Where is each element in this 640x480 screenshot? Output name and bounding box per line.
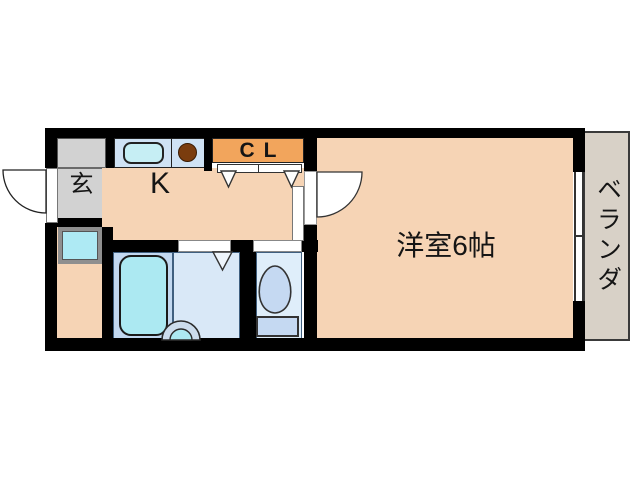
- washroom-door: [178, 240, 231, 252]
- veranda-window: [574, 172, 584, 301]
- closet-sliding-door-divider: [258, 164, 259, 173]
- wall-segment: [302, 240, 318, 252]
- wall-segment: [45, 223, 57, 351]
- kitchen-room: [102, 168, 304, 240]
- toilet-tank-icon: [256, 316, 299, 337]
- entrance-door-swing-icon: [3, 170, 46, 213]
- wall-segment: [102, 240, 178, 252]
- stove-burner-icon: [178, 143, 197, 162]
- kitchen-label: K: [140, 167, 180, 201]
- wall-segment: [240, 252, 256, 338]
- kitchen-counter-divider: [171, 139, 172, 167]
- wall-segment: [204, 138, 212, 171]
- closet-label: CL: [212, 138, 304, 163]
- toilet-door: [253, 240, 302, 252]
- entrance-label: 玄: [57, 170, 106, 200]
- washing-machine-pan-icon: [58, 227, 102, 264]
- veranda-label: ベランダ: [588, 150, 626, 322]
- room-door-opening: [304, 171, 317, 225]
- wall-segment: [231, 240, 253, 252]
- wall-segment: [304, 138, 317, 173]
- floorplan: 玄 K CL 洋室6帖 ベランダ: [0, 0, 640, 480]
- wall-segment: [573, 128, 585, 172]
- washing-machine-pan-inner: [62, 231, 98, 260]
- wall-segment: [573, 301, 585, 351]
- window-latch-icon: [576, 235, 582, 237]
- wall-segment: [57, 218, 102, 227]
- bathtub-icon: [119, 255, 168, 336]
- wall-segment: [45, 338, 585, 351]
- washroom: [173, 252, 240, 340]
- western-room-label: 洋室6帖: [346, 228, 546, 264]
- wall-segment: [45, 128, 585, 138]
- closet-sliding-door: [217, 164, 302, 173]
- wall-segment: [106, 138, 114, 168]
- entrance-step-divider: [57, 167, 106, 169]
- kitchen-sink-icon: [123, 142, 164, 164]
- wall-segment: [45, 128, 57, 168]
- toilet-door-leaf: [292, 186, 304, 241]
